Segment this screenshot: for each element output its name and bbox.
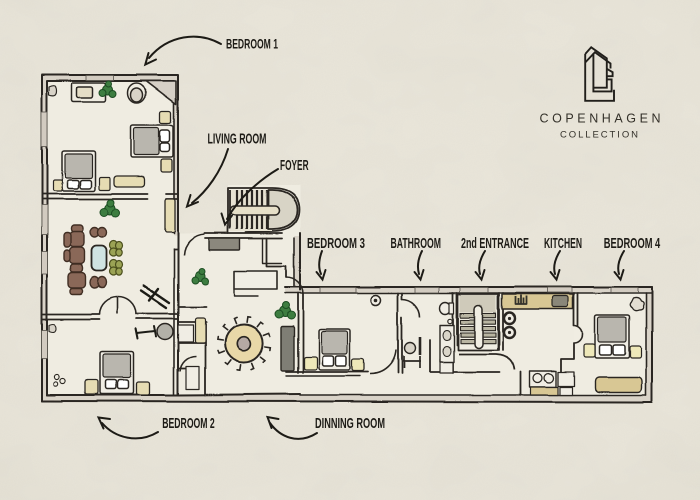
svg-text:KITCHEN: KITCHEN (544, 235, 582, 252)
svg-text:DINNING ROOM: DINNING ROOM (315, 415, 385, 432)
svg-text:BEDROOM 2: BEDROOM 2 (162, 415, 215, 432)
svg-text:2nd ENTRANCE: 2nd ENTRANCE (461, 235, 529, 252)
svg-text:LIVING ROOM: LIVING ROOM (208, 131, 267, 148)
svg-text:FOYER: FOYER (280, 157, 309, 174)
svg-text:BEDROOM 3: BEDROOM 3 (307, 235, 365, 252)
svg-text:BEDROOM 4: BEDROOM 4 (604, 235, 661, 252)
svg-text:BATHROOM: BATHROOM (390, 235, 441, 252)
svg-text:BEDROOM 1: BEDROOM 1 (226, 37, 278, 52)
